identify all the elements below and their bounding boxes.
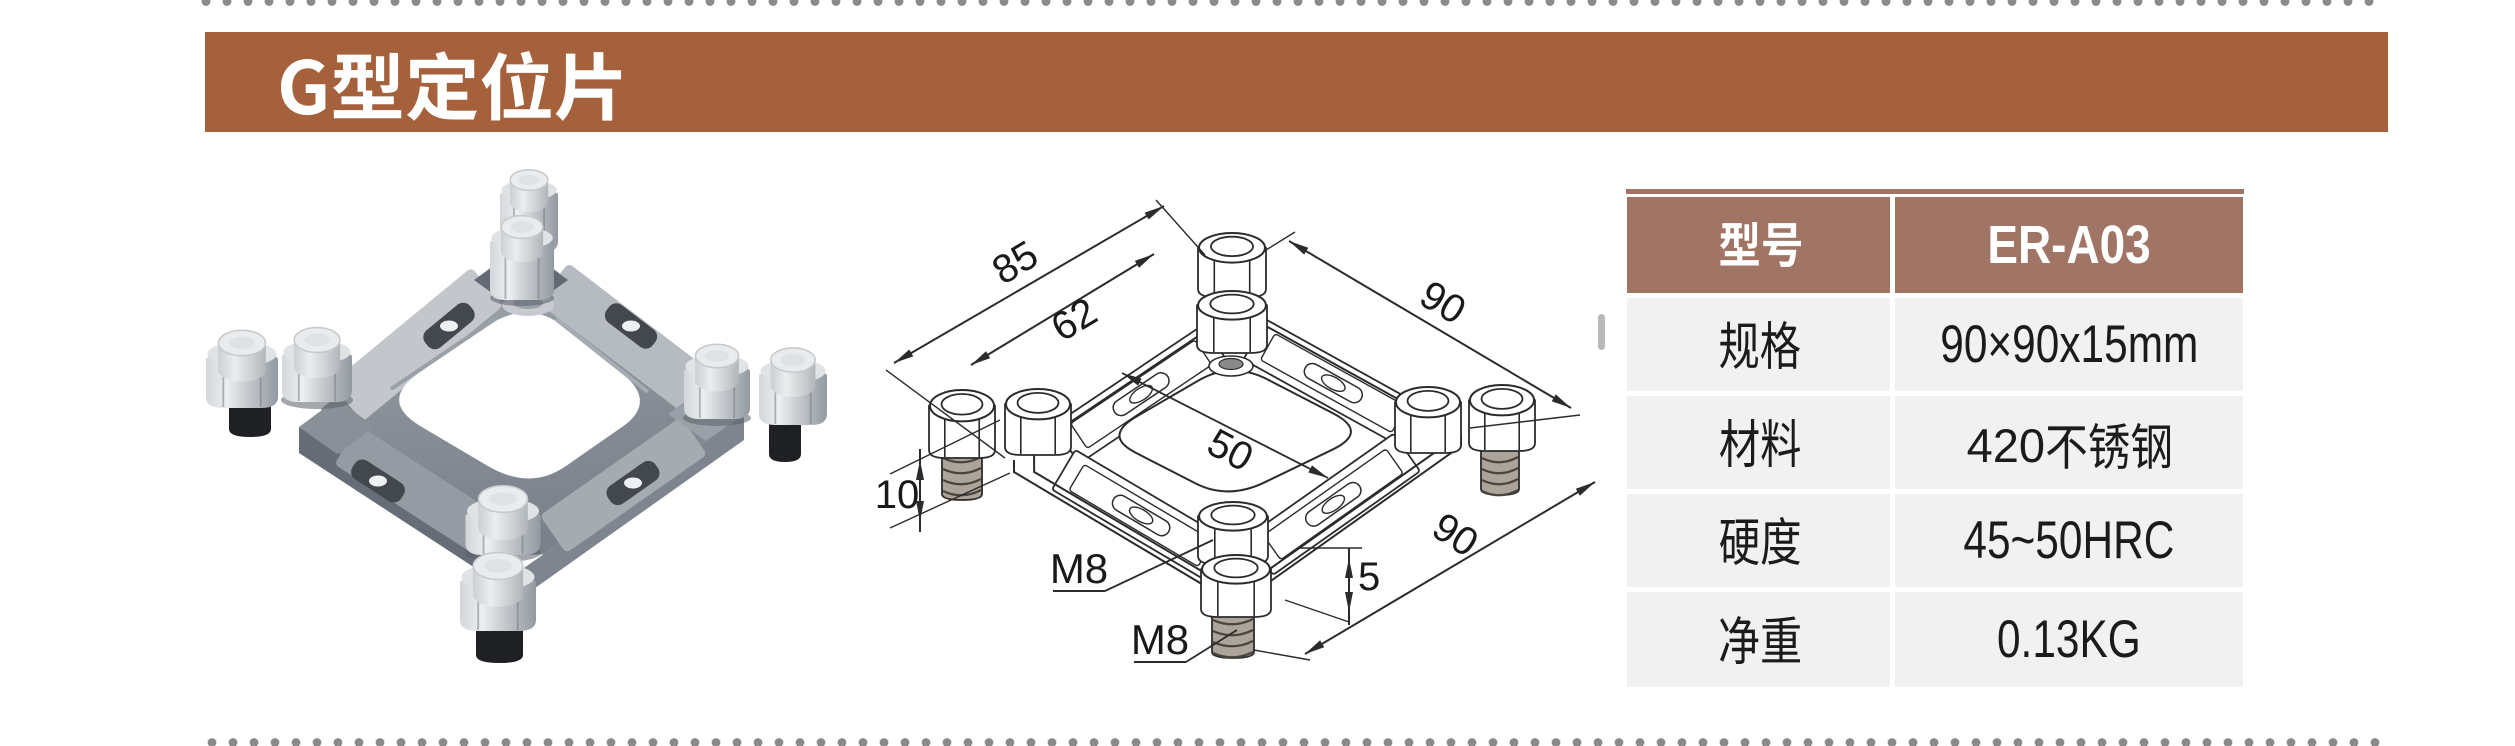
svg-text:90: 90 (1424, 505, 1485, 566)
svg-text:M8: M8 (1131, 616, 1189, 663)
svg-text:10: 10 (875, 473, 920, 517)
svg-text:M8: M8 (1050, 545, 1108, 592)
svg-text:62: 62 (1044, 290, 1105, 351)
svg-text:5: 5 (1358, 555, 1380, 599)
svg-text:85: 85 (985, 233, 1046, 294)
svg-text:90: 90 (1412, 273, 1473, 334)
